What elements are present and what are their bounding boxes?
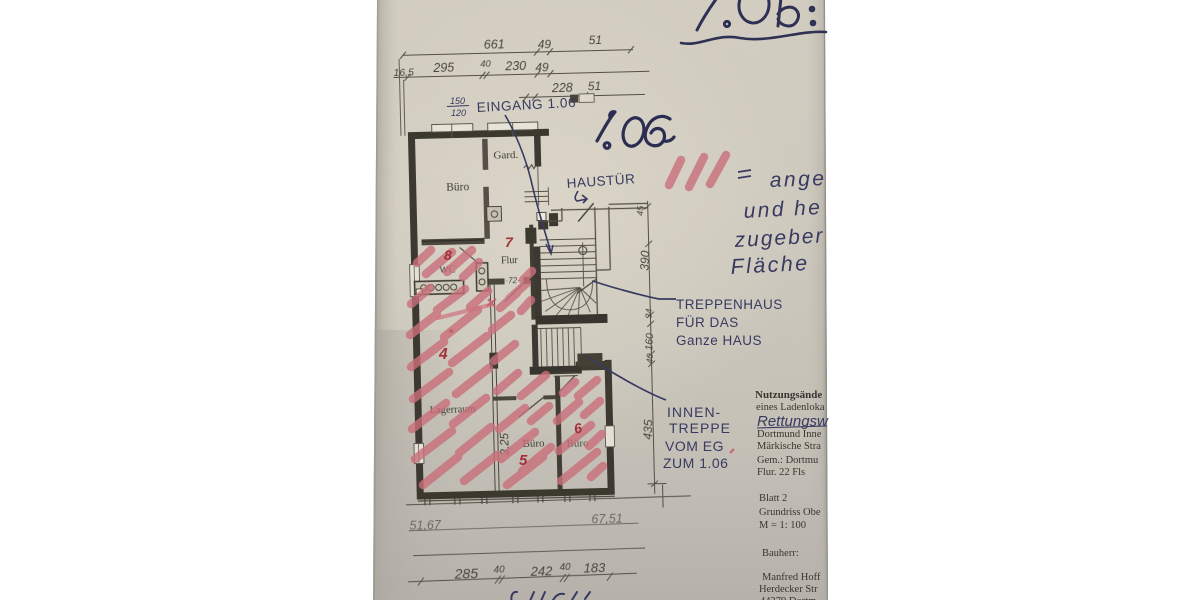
svg-text:Nutzungsände: Nutzungsände — [755, 389, 822, 401]
svg-text:295: 295 — [432, 61, 454, 76]
svg-text:Gem.: Dortmu: Gem.: Dortmu — [757, 455, 819, 466]
svg-text:4: 4 — [438, 346, 448, 363]
svg-text:Blatt 2: Blatt 2 — [759, 493, 787, 504]
svg-text:228: 228 — [551, 81, 573, 96]
svg-text:34: 34 — [644, 308, 654, 318]
svg-text:51: 51 — [589, 33, 603, 47]
svg-text:Dortmund Inne: Dortmund Inne — [757, 429, 822, 440]
svg-text:49: 49 — [538, 37, 552, 51]
svg-text:TREPPENHAUS: TREPPENHAUS — [676, 297, 783, 312]
svg-text:120: 120 — [451, 108, 466, 118]
svg-text:150: 150 — [450, 96, 465, 106]
svg-text:Bauherr:: Bauherr: — [762, 548, 799, 559]
svg-text:ange: ange — [769, 167, 826, 192]
svg-text:7: 7 — [505, 234, 514, 250]
svg-text:Ganze HAUS: Ganze HAUS — [676, 333, 762, 348]
svg-text:242: 242 — [529, 563, 553, 579]
svg-text:ZUM 1.06: ZUM 1.06 — [663, 455, 728, 471]
svg-text:435: 435 — [640, 419, 655, 440]
svg-text:M = 1: 100: M = 1: 100 — [759, 520, 806, 531]
svg-text:51: 51 — [588, 79, 602, 93]
svg-text:TREPPE: TREPPE — [669, 420, 731, 436]
svg-text:8: 8 — [444, 247, 452, 263]
svg-text:230: 230 — [504, 59, 526, 74]
svg-text:49: 49 — [535, 60, 549, 74]
svg-text:40: 40 — [493, 564, 505, 575]
svg-text:Flur: Flur — [501, 255, 519, 266]
svg-text:67,51: 67,51 — [591, 512, 623, 527]
svg-text:16,5: 16,5 — [393, 67, 414, 79]
svg-text:Flur. 22 Fls: Flur. 22 Fls — [757, 467, 805, 478]
svg-text:40: 40 — [480, 59, 492, 70]
svg-text:INNEN-: INNEN- — [667, 404, 721, 420]
svg-text:44379 Dortm: 44379 Dortm — [760, 596, 816, 600]
svg-text:Herdecker Str: Herdecker Str — [759, 584, 818, 595]
svg-text:Büro: Büro — [446, 181, 470, 194]
svg-text:40: 40 — [645, 353, 655, 363]
svg-text:285: 285 — [453, 565, 478, 582]
svg-text:eines Ladenloka: eines Ladenloka — [756, 402, 825, 413]
svg-text:160: 160 — [643, 333, 656, 351]
svg-text:390: 390 — [637, 250, 652, 271]
svg-text:40: 40 — [559, 562, 571, 573]
svg-text:183: 183 — [583, 560, 606, 576]
svg-text:Fläche: Fläche — [730, 251, 810, 279]
svg-text:45: 45 — [635, 205, 645, 216]
svg-text:Grundriss Obe: Grundriss Obe — [759, 507, 821, 518]
svg-text:Manfred Hoff: Manfred Hoff — [762, 572, 821, 583]
svg-text:Märkische Stra: Märkische Stra — [757, 441, 821, 452]
svg-text:FÜR DAS: FÜR DAS — [676, 315, 739, 330]
svg-text:VOM EG: VOM EG — [665, 438, 724, 454]
svg-text:51,67: 51,67 — [409, 518, 442, 533]
svg-text:·72·: ·72· — [505, 276, 519, 285]
svg-text:5: 5 — [519, 452, 528, 469]
svg-text:661: 661 — [484, 37, 505, 52]
svg-text:zugeber: zugeber — [733, 224, 825, 252]
svg-text:und he: und he — [743, 196, 823, 223]
svg-text:Gard.: Gard. — [493, 149, 518, 162]
